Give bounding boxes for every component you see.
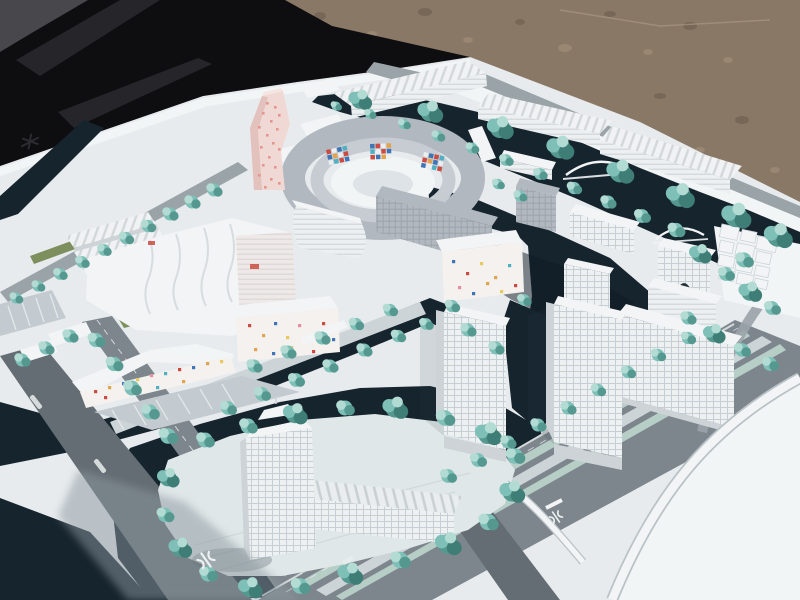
mosaic-tile (344, 156, 349, 161)
gravel-speckle (723, 57, 733, 63)
mosaic-tile (421, 163, 426, 168)
mosaic-tile (376, 149, 381, 154)
mosaic-tile (437, 166, 442, 171)
dot (452, 260, 455, 263)
dot (274, 322, 277, 325)
speckle (274, 106, 277, 109)
gravel-speckle (604, 11, 616, 17)
speckle (258, 174, 261, 177)
dot (298, 324, 301, 327)
mosaic-tile (438, 161, 443, 166)
mosaic-tile (331, 148, 336, 153)
gravel-speckle (463, 37, 473, 43)
mosaic-tile (427, 159, 432, 164)
dot (248, 324, 251, 327)
dot (286, 336, 289, 339)
speckle (274, 166, 277, 169)
dot (108, 386, 111, 389)
red-accent (250, 264, 259, 269)
mosaic-tile (337, 147, 342, 152)
gravel-speckle (515, 19, 525, 25)
dot (322, 322, 325, 325)
dot (220, 360, 223, 363)
dot (254, 348, 257, 351)
mosaic-tile (370, 144, 375, 149)
speckle (266, 102, 269, 105)
dot (94, 390, 97, 393)
model-scene (0, 0, 800, 600)
dot (192, 366, 195, 369)
gravel-speckle (683, 22, 697, 30)
dot (182, 380, 185, 383)
dot (472, 292, 475, 295)
mosaic-tile (338, 152, 343, 157)
tower-face (246, 428, 316, 560)
mosaic-tile (433, 160, 438, 165)
tower-face (554, 304, 622, 458)
mosaic-tile (381, 154, 386, 159)
gravel-speckle (643, 49, 653, 55)
speckle (262, 112, 265, 115)
mosaic-tile (343, 151, 348, 156)
mosaic-tile (381, 143, 386, 148)
dot (262, 334, 265, 337)
gravel-speckle (654, 93, 666, 99)
mosaic-tile (386, 143, 391, 148)
dot (500, 290, 503, 293)
mosaic-tile (328, 160, 333, 165)
mosaic-tile (428, 153, 433, 158)
dot (104, 396, 107, 399)
mosaic-tile (327, 154, 332, 159)
mosaic-tile (426, 164, 431, 169)
dot (508, 264, 511, 267)
red-accent (148, 241, 155, 245)
speckle (266, 134, 269, 137)
speckle (276, 128, 279, 131)
dot (206, 362, 209, 365)
mosaic-tile (375, 144, 380, 149)
speckle (258, 126, 261, 129)
tower-side (546, 302, 554, 442)
gravel-speckle (770, 167, 780, 173)
mosaic-tile (339, 158, 344, 163)
dot (164, 372, 167, 375)
mosaic-tile (422, 157, 427, 162)
speckle (270, 178, 273, 181)
speckle (268, 156, 271, 159)
mosaic-tile (376, 155, 381, 160)
mosaic-tile (333, 153, 338, 158)
gravel-speckle (418, 8, 432, 16)
dot (332, 338, 335, 341)
speckle (260, 146, 263, 149)
mosaic-tile (370, 149, 375, 154)
mosaic-tile (370, 155, 375, 160)
mosaic-tile (334, 159, 339, 164)
mosaic-tile (439, 155, 444, 160)
speckle (278, 182, 281, 185)
speckle (264, 186, 267, 189)
dot (480, 262, 483, 265)
dot (466, 272, 469, 275)
dot (136, 378, 139, 381)
mosaic-tile (387, 149, 392, 154)
gravel-speckle (558, 44, 572, 52)
confetti-face (442, 242, 524, 302)
mosaic-tile (381, 149, 386, 154)
dot (514, 284, 517, 287)
mosaic-tile (434, 154, 439, 159)
dot (494, 276, 497, 279)
dot (178, 368, 181, 371)
mosaic-tile (342, 146, 347, 151)
speckle (278, 148, 281, 151)
mosaic-tile (387, 154, 392, 159)
cube (718, 240, 734, 254)
speckle (270, 120, 273, 123)
dot (486, 282, 489, 285)
gravel-speckle (735, 116, 749, 124)
speckle (272, 142, 275, 145)
dot (272, 352, 275, 355)
dot (156, 386, 159, 389)
mosaic-tile (423, 152, 428, 157)
dot (458, 286, 461, 289)
mosaic-tile (432, 165, 437, 170)
dot (312, 350, 315, 353)
mosaic-tile (326, 149, 331, 154)
dot (150, 374, 153, 377)
speckle (262, 164, 265, 167)
speckle (278, 114, 281, 117)
photo-of-architecture-model (0, 0, 800, 600)
